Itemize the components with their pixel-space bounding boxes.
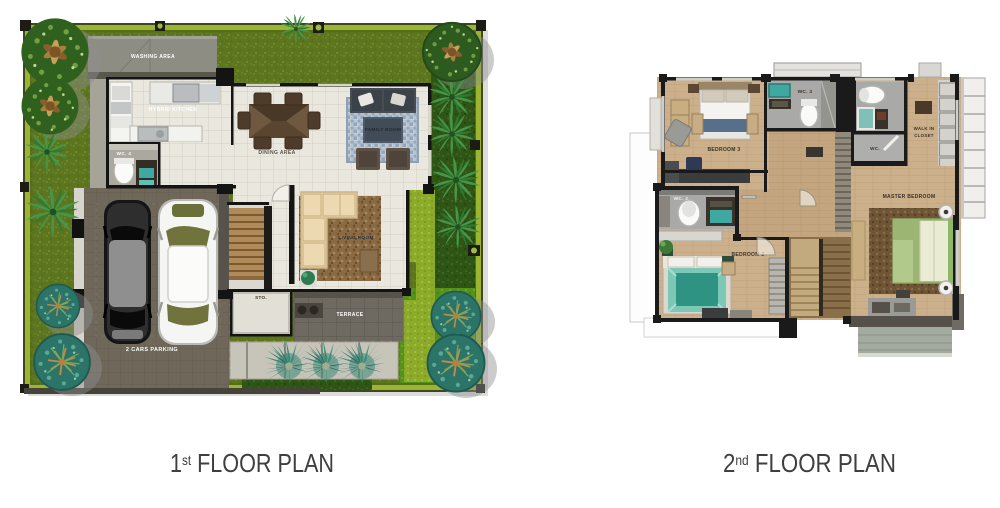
svg-text:STO.: STO. [255,295,267,300]
svg-text:WC. 3: WC. 3 [798,89,813,95]
svg-text:WC.: WC. [870,146,880,151]
svg-text:WASHING AREA: WASHING AREA [131,54,175,60]
svg-text:1st FLOOR PLAN: 1st FLOOR PLAN [170,448,334,478]
svg-text:LIVING ROOM: LIVING ROOM [338,235,374,241]
svg-text:WALK IN: WALK IN [914,126,935,131]
svg-text:TERRACE: TERRACE [337,312,364,318]
svg-text:FAMILY ROOM: FAMILY ROOM [365,127,402,133]
svg-text:DINING AREA: DINING AREA [258,150,295,156]
svg-text:2 CARS PARKING: 2 CARS PARKING [126,347,178,353]
svg-text:BEDROOM 3: BEDROOM 3 [708,147,741,153]
svg-text:2nd FLOOR PLAN: 2nd FLOOR PLAN [723,448,896,478]
svg-text:HYBRID KITCHEN: HYBRID KITCHEN [149,107,197,113]
svg-text:CLOSET: CLOSET [914,133,934,138]
svg-text:WC. 2: WC. 2 [674,196,689,202]
svg-text:WC. 4: WC. 4 [117,151,132,156]
svg-text:MASTER BEDROOM: MASTER BEDROOM [883,194,936,200]
